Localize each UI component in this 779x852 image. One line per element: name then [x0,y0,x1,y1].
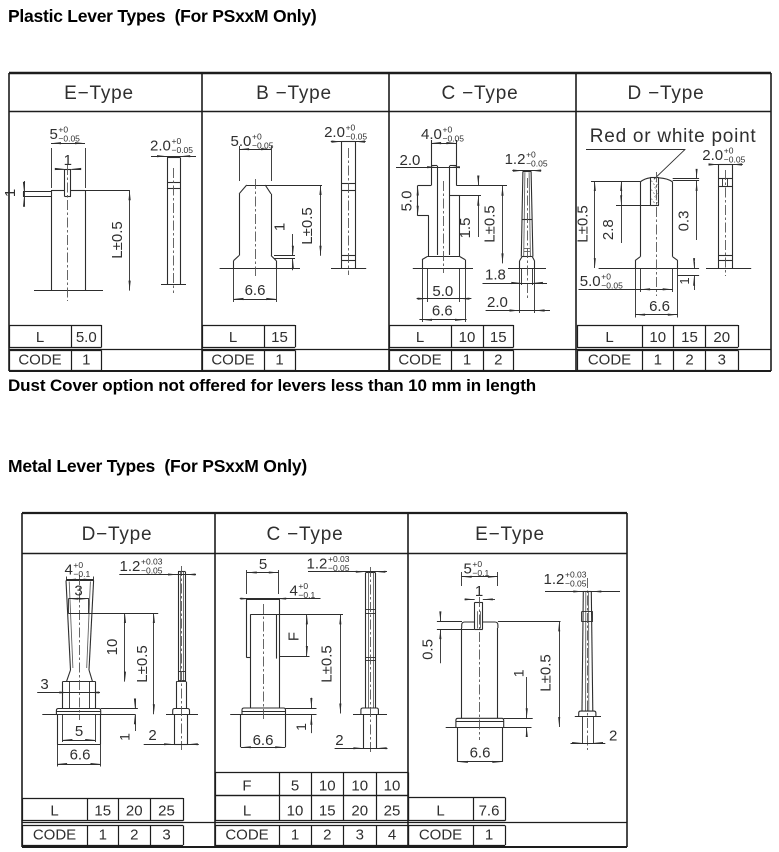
svg-text:−0.05: −0.05 [346,132,368,142]
svg-text:1: 1 [291,827,299,844]
svg-text:−0.05: −0.05 [141,566,163,576]
svg-text:CODE: CODE [33,827,76,844]
svg-text:1: 1 [2,189,19,197]
svg-text:6.6: 6.6 [245,282,266,299]
svg-text:15: 15 [681,329,698,346]
svg-text:15: 15 [319,802,336,819]
svg-text:25: 25 [384,802,401,819]
svg-text:−0.05: −0.05 [565,579,587,589]
svg-text:2: 2 [494,352,502,369]
svg-text:1: 1 [82,352,90,369]
svg-text:5.0: 5.0 [432,283,453,300]
svg-text:L±0.5: L±0.5 [134,645,151,682]
svg-text:2.0: 2.0 [400,152,421,169]
svg-text:C −Type: C −Type [267,524,344,545]
svg-text:2: 2 [335,732,343,749]
svg-text:C −Type: C −Type [442,83,519,104]
svg-text:CODE: CODE [18,352,61,369]
svg-text:2: 2 [148,727,156,744]
svg-text:L±0.5: L±0.5 [319,645,336,682]
svg-text:L±0.5: L±0.5 [109,221,126,258]
svg-text:1: 1 [463,352,471,369]
svg-text:2: 2 [685,352,693,369]
svg-text:1.2: 1.2 [544,571,565,588]
svg-text:25: 25 [158,802,175,819]
svg-text:L±0.5: L±0.5 [299,207,316,244]
svg-text:5: 5 [464,561,472,578]
svg-text:10: 10 [319,777,336,794]
svg-text:L: L [243,802,251,819]
svg-text:3: 3 [718,352,726,369]
svg-text:D−Type: D−Type [82,524,153,545]
svg-text:1: 1 [485,827,493,844]
svg-text:15: 15 [94,802,111,819]
svg-text:5: 5 [259,556,267,573]
svg-text:B −Type: B −Type [256,83,332,104]
svg-text:−0.05: −0.05 [724,155,746,165]
svg-text:20: 20 [126,802,143,819]
svg-text:5: 5 [75,723,83,740]
svg-text:L: L [36,329,44,346]
svg-text:1.2: 1.2 [307,556,328,573]
svg-text:F: F [286,632,303,641]
svg-text:0.5: 0.5 [420,639,437,660]
svg-text:1.8: 1.8 [485,267,506,284]
svg-text:CODE: CODE [588,352,631,369]
svg-text:1: 1 [272,223,289,231]
svg-text:5.0: 5.0 [76,329,97,346]
svg-text:4: 4 [290,583,298,600]
svg-text:10: 10 [351,777,368,794]
svg-text:L: L [50,802,58,819]
svg-text:6.6: 6.6 [253,732,274,749]
svg-text:10: 10 [287,802,304,819]
svg-text:−0.05: −0.05 [172,145,194,155]
svg-text:L: L [229,329,237,346]
svg-text:15: 15 [490,329,507,346]
svg-text:6.6: 6.6 [649,298,670,315]
svg-text:1.2: 1.2 [120,558,141,575]
svg-text:Metal Lever Types (For PSxxM: Metal Lever Types (For PSxxM Only) [8,456,307,476]
svg-text:CODE: CODE [211,352,254,369]
svg-text:2: 2 [609,728,617,745]
svg-text:4.0: 4.0 [421,126,442,143]
svg-text:2.0: 2.0 [324,124,345,141]
svg-text:3: 3 [74,583,82,600]
svg-text:10: 10 [459,329,476,346]
svg-text:5: 5 [50,126,58,143]
svg-text:E−Type: E−Type [64,83,134,104]
svg-text:7.6: 7.6 [479,802,500,819]
svg-text:L: L [605,329,613,346]
svg-text:2: 2 [130,827,138,844]
svg-text:CODE: CODE [225,827,268,844]
svg-text:6.6: 6.6 [70,747,91,764]
svg-text:1.2: 1.2 [505,151,526,168]
svg-text:10: 10 [104,639,121,656]
svg-text:4: 4 [388,827,396,844]
svg-text:L: L [416,329,424,346]
svg-text:−0.1: −0.1 [472,568,489,578]
svg-text:Plastic Lever Types (For PSxx: Plastic Lever Types (For PSxxM Only) [8,6,316,26]
svg-text:3: 3 [40,676,48,693]
svg-text:2.0: 2.0 [487,294,508,311]
svg-text:15: 15 [271,329,288,346]
svg-text:CODE: CODE [419,827,462,844]
svg-text:1: 1 [511,669,527,677]
svg-text:−0.05: −0.05 [328,563,350,573]
svg-text:L±0.5: L±0.5 [574,205,591,242]
svg-text:2: 2 [323,827,331,844]
svg-text:1: 1 [275,352,283,369]
svg-text:CODE: CODE [398,352,441,369]
svg-text:−0.1: −0.1 [73,569,90,579]
svg-text:1: 1 [64,152,72,169]
svg-text:L: L [436,802,444,819]
svg-text:1: 1 [654,352,662,369]
svg-text:1: 1 [117,733,133,741]
svg-text:5: 5 [291,777,299,794]
svg-text:1: 1 [475,583,483,600]
svg-text:2.8: 2.8 [600,219,617,240]
svg-text:−0.05: −0.05 [526,159,548,169]
svg-text:3: 3 [162,827,170,844]
svg-text:E−Type: E−Type [475,524,545,545]
svg-text:F: F [242,777,251,794]
svg-text:1.5: 1.5 [457,218,474,239]
svg-text:3: 3 [356,827,364,844]
svg-text:20: 20 [713,329,730,346]
svg-text:5.0: 5.0 [580,273,601,290]
svg-text:6.6: 6.6 [470,745,491,762]
svg-text:0.3: 0.3 [676,211,693,232]
svg-text:−0.05: −0.05 [601,281,623,291]
svg-text:D −Type: D −Type [628,83,705,104]
svg-text:5.0: 5.0 [399,191,416,212]
svg-text:Dust Cover option not offered: Dust Cover option not offered for levers… [8,376,536,395]
svg-text:1: 1 [293,723,309,731]
svg-text:5.0: 5.0 [231,133,252,150]
svg-text:−0.05: −0.05 [252,141,274,151]
svg-text:4: 4 [65,562,73,579]
svg-text:L±0.5: L±0.5 [481,205,498,242]
svg-text:−0.1: −0.1 [298,590,315,600]
svg-text:L±0.5: L±0.5 [538,654,555,691]
svg-text:1: 1 [677,277,692,284]
svg-text:6.6: 6.6 [432,303,453,320]
svg-text:−0.05: −0.05 [58,134,80,144]
svg-text:Red or white point: Red or white point [590,126,757,147]
svg-text:2.0: 2.0 [150,138,171,155]
svg-text:1: 1 [99,827,107,844]
svg-text:20: 20 [351,802,368,819]
svg-text:10: 10 [649,329,666,346]
svg-text:2.0: 2.0 [702,147,723,164]
svg-text:−0.05: −0.05 [443,134,465,144]
svg-text:10: 10 [384,777,401,794]
